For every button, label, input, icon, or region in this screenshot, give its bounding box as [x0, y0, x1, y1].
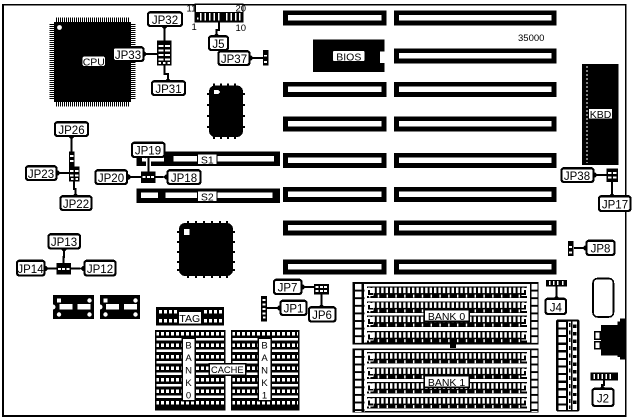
svg-text:J2: J2 — [597, 394, 609, 406]
svg-text:KBD: KBD — [590, 109, 612, 121]
svg-text:JP12: JP12 — [87, 264, 113, 276]
svg-text:35000: 35000 — [518, 33, 544, 44]
svg-text:BANK 0: BANK 0 — [428, 311, 466, 323]
svg-text:JP31: JP31 — [155, 84, 181, 96]
svg-text:JP18: JP18 — [171, 173, 197, 185]
svg-text:1: 1 — [262, 391, 267, 402]
svg-text:B: B — [185, 341, 191, 352]
svg-text:BIOS: BIOS — [336, 51, 361, 63]
svg-text:JP6: JP6 — [312, 310, 332, 322]
svg-text:A: A — [261, 353, 268, 364]
svg-text:JP23: JP23 — [28, 169, 54, 181]
svg-text:JP1: JP1 — [284, 304, 304, 316]
svg-text:0: 0 — [186, 391, 191, 402]
svg-text:BANK 1: BANK 1 — [428, 377, 466, 389]
svg-text:N: N — [261, 366, 268, 377]
svg-text:JP26: JP26 — [58, 125, 84, 137]
svg-text:JP32: JP32 — [152, 15, 178, 27]
svg-text:JP7: JP7 — [278, 283, 298, 295]
svg-text:JP8: JP8 — [591, 244, 611, 256]
svg-text:K: K — [261, 378, 268, 389]
svg-text:1: 1 — [192, 22, 197, 33]
svg-text:S2: S2 — [201, 192, 214, 204]
svg-text:N: N — [185, 366, 192, 377]
svg-text:JP14: JP14 — [17, 264, 44, 276]
svg-text:B: B — [261, 341, 267, 352]
svg-text:JP19: JP19 — [135, 146, 161, 158]
svg-text:JP20: JP20 — [98, 173, 124, 185]
svg-text:JP33: JP33 — [115, 50, 141, 62]
svg-text:JP38: JP38 — [564, 171, 590, 183]
svg-text:10: 10 — [236, 23, 247, 34]
svg-text:TAG: TAG — [179, 313, 200, 325]
svg-text:JP22: JP22 — [63, 199, 89, 211]
svg-text:JP37: JP37 — [221, 54, 247, 66]
svg-text:JP17: JP17 — [602, 199, 628, 211]
svg-text:K: K — [185, 378, 192, 389]
svg-text:JP13: JP13 — [51, 237, 77, 249]
svg-text:CACHE: CACHE — [211, 365, 244, 375]
svg-text:J4: J4 — [550, 303, 563, 315]
svg-text:S1: S1 — [201, 155, 214, 167]
svg-text:J5: J5 — [212, 39, 224, 51]
svg-text:11: 11 — [187, 4, 197, 15]
svg-text:A: A — [185, 353, 192, 364]
svg-text:20: 20 — [236, 4, 247, 15]
svg-text:CPU: CPU — [83, 57, 105, 69]
